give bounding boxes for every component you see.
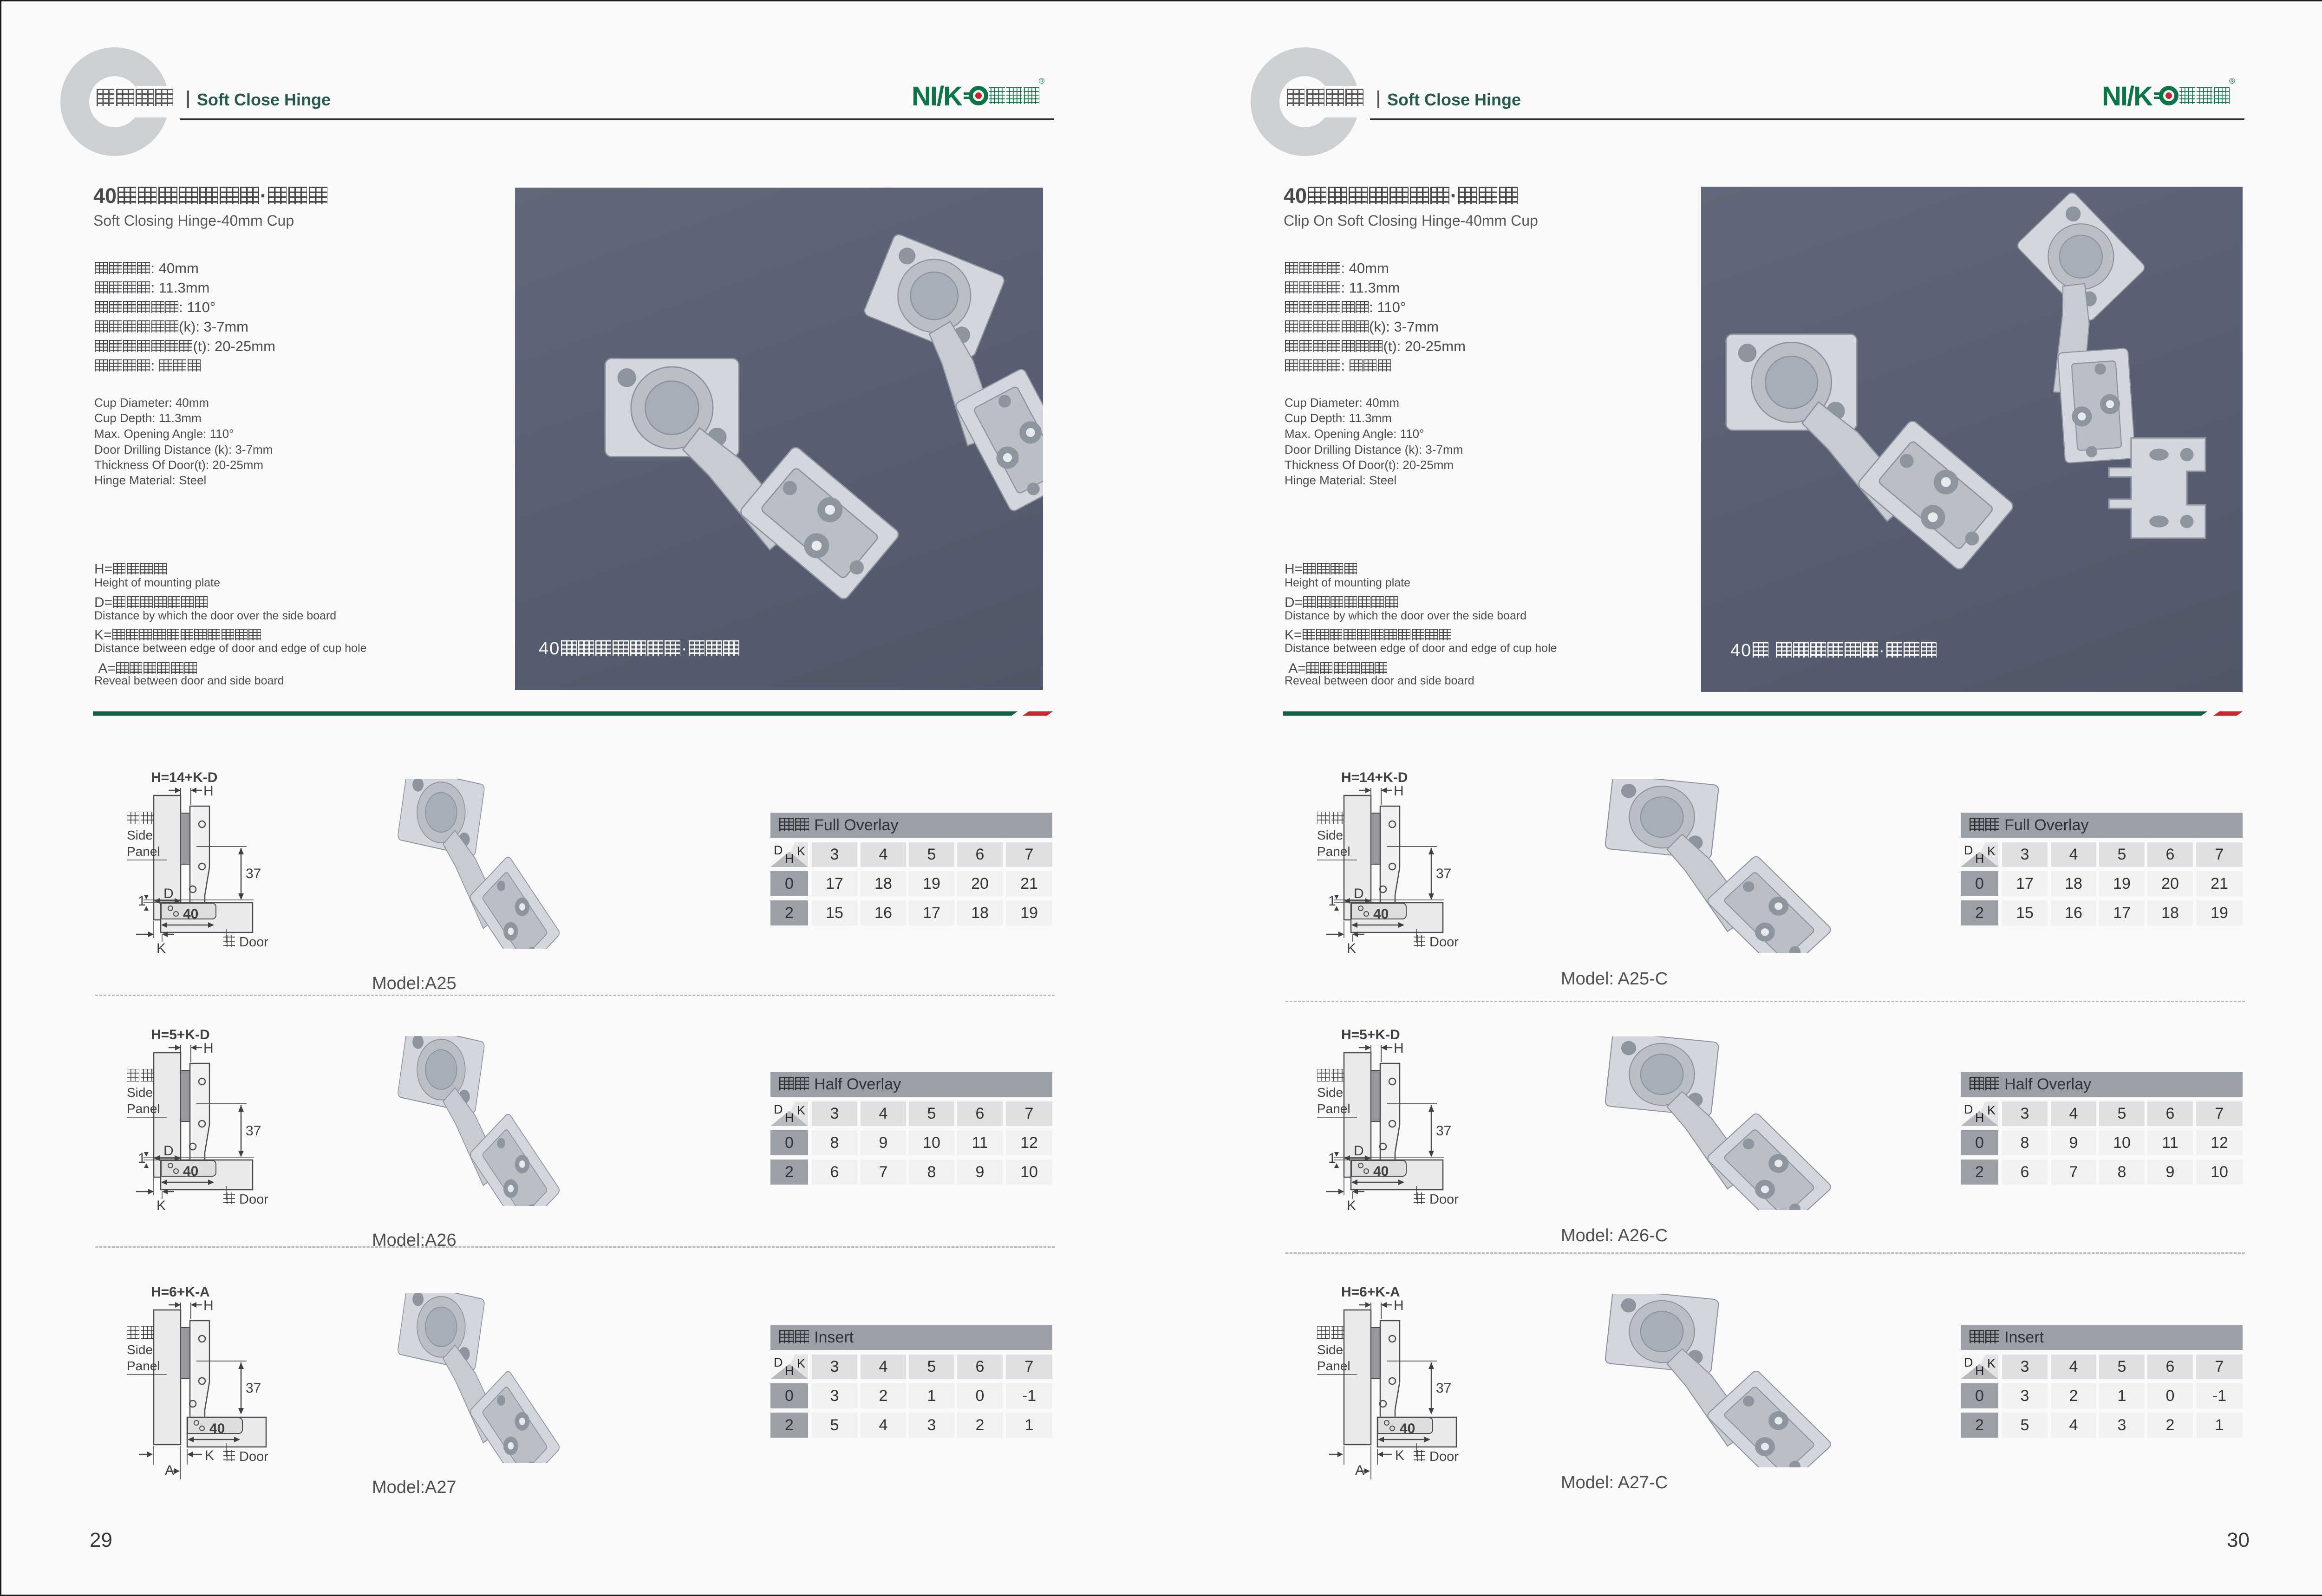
svg-text:H: H	[203, 1298, 214, 1313]
svg-text:D: D	[163, 1143, 174, 1159]
svg-text:Side: Side	[127, 1085, 153, 1100]
svg-text:40: 40	[183, 906, 198, 922]
svg-text:®: ®	[2229, 77, 2235, 85]
svg-text:H=6+K-A: H=6+K-A	[151, 1284, 210, 1300]
svg-text:K: K	[205, 1448, 214, 1463]
svg-text:40: 40	[1400, 1421, 1415, 1436]
svg-text:Door: Door	[1429, 1192, 1459, 1207]
svg-text:40: 40	[209, 1421, 225, 1436]
svg-text:37: 37	[246, 866, 261, 881]
svg-text:Panel: Panel	[127, 1101, 160, 1116]
svg-text:A: A	[165, 1463, 174, 1478]
svg-text:H: H	[1394, 783, 1404, 799]
svg-text:K: K	[1395, 1448, 1404, 1463]
svg-text:®: ®	[1039, 77, 1045, 85]
svg-text:40: 40	[1373, 1164, 1389, 1179]
svg-text:K: K	[157, 941, 166, 956]
svg-text:Door: Door	[239, 1449, 268, 1464]
svg-text:H: H	[203, 783, 214, 799]
svg-text:D: D	[1354, 1143, 1364, 1159]
svg-text:NI/K: NI/K	[2103, 81, 2153, 111]
svg-text:H=5+K-D: H=5+K-D	[1341, 1027, 1400, 1042]
svg-text:37: 37	[1436, 1123, 1451, 1139]
svg-text:Panel: Panel	[1317, 1101, 1350, 1116]
svg-text:37: 37	[1436, 1381, 1451, 1396]
svg-text:40: 40	[1373, 906, 1389, 922]
svg-text:K: K	[1347, 941, 1356, 956]
svg-text:Panel: Panel	[1317, 1359, 1350, 1373]
svg-text:37: 37	[246, 1123, 261, 1139]
svg-text:Side: Side	[127, 828, 153, 842]
svg-text:H=5+K-D: H=5+K-D	[151, 1027, 210, 1042]
svg-text:Door: Door	[1429, 935, 1459, 950]
svg-text:Side: Side	[1317, 828, 1343, 842]
svg-text:H: H	[203, 1041, 214, 1056]
svg-text:H=6+K-A: H=6+K-A	[1341, 1284, 1400, 1300]
svg-text:K: K	[157, 1198, 166, 1213]
svg-text:37: 37	[246, 1381, 261, 1396]
svg-text:Panel: Panel	[127, 844, 160, 859]
svg-text:Side: Side	[1317, 1085, 1343, 1100]
svg-text:H: H	[1394, 1041, 1404, 1056]
svg-text:H: H	[1394, 1298, 1404, 1313]
svg-text:A: A	[1355, 1463, 1364, 1478]
svg-text:NI/K: NI/K	[913, 81, 963, 111]
svg-text:D: D	[1354, 886, 1364, 901]
svg-text:Side: Side	[127, 1342, 153, 1357]
svg-text:Panel: Panel	[1317, 844, 1350, 859]
svg-text:40: 40	[183, 1164, 198, 1179]
svg-text:Panel: Panel	[127, 1359, 160, 1373]
svg-text:Door: Door	[1429, 1449, 1459, 1464]
svg-text:37: 37	[1436, 866, 1451, 881]
svg-text:Side: Side	[1317, 1342, 1343, 1357]
svg-text:D: D	[163, 886, 174, 901]
svg-text:Door: Door	[239, 935, 268, 950]
svg-text:K: K	[1347, 1198, 1356, 1213]
svg-text:Door: Door	[239, 1192, 268, 1207]
